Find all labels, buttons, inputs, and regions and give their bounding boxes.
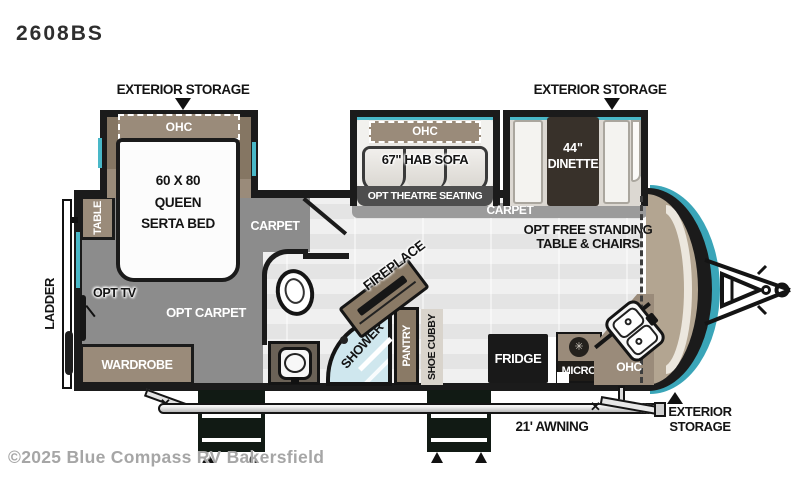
bath-vertical-wall [262, 275, 267, 345]
fridge: FRIDGE [488, 334, 548, 383]
bed-size-label: 60 X 80 [120, 170, 236, 192]
sofa-label: 67" HAB SOFA [362, 152, 488, 167]
bed-type-label: QUEEN [120, 192, 236, 214]
free-standing-line2: TABLE & CHAIRS [508, 237, 668, 251]
sink-drain [634, 336, 644, 346]
pantry-label: PANTRY [401, 325, 413, 367]
tv-unit [80, 295, 86, 341]
bath-sink-basin [284, 353, 306, 373]
free-standing-line1: OPT FREE STANDING [508, 223, 668, 237]
entry-steps-bedroom [198, 390, 265, 452]
bedroom-cabinet-right [239, 117, 251, 179]
ladder-label: LADDER [42, 278, 57, 330]
shoe-cubby-label: SHOE CUBBY [426, 314, 438, 380]
hitch-a-frame [702, 238, 797, 342]
kitchen-ohc-label: OHC [604, 360, 654, 374]
step-tread-line [202, 438, 261, 442]
bath-faucet [291, 377, 299, 384]
ladder-grab-handle [65, 331, 73, 375]
step-foot [431, 452, 443, 463]
dinette-size-label: 44" [547, 141, 599, 157]
ladder-bracket [72, 217, 78, 223]
storage-bottom-line1: EXTERIOR [654, 405, 746, 420]
opt-carpet-label: OPT CARPET [158, 305, 254, 320]
theatre-seating-label: OPT THEATRE SEATING [368, 190, 483, 202]
bedroom-carpet-label: CARPET [243, 219, 307, 233]
step-tread-line [431, 414, 487, 418]
wardrobe-label: WARDROBE [83, 358, 191, 372]
entry-steps-main [427, 390, 491, 452]
model-title: 2608BS [16, 22, 104, 46]
dinette-seatback-right [631, 120, 641, 182]
micro-notch [557, 372, 569, 383]
queen-bed: 60 X 80 QUEEN SERTA BED [116, 138, 240, 282]
pantry: PANTRY [394, 307, 419, 385]
wardrobe: WARDROBE [80, 344, 194, 385]
rear-window-accent [76, 232, 80, 288]
bed-brand-label: SERTA BED [120, 213, 236, 235]
floorplan-canvas: LADDER TABLE WARDROBE OPT TV OHC 60 X 80… [0, 0, 800, 478]
step-tread-line [431, 438, 487, 442]
bath-wall-stub [303, 253, 349, 259]
awning-tube [158, 403, 660, 414]
theatre-seating-band: OPT THEATRE SEATING [357, 186, 493, 206]
shoe-cubby: SHOE CUBBY [421, 309, 443, 385]
bedroom-ohc: OHC [118, 114, 240, 140]
copyright-watermark: ©2025 Blue Compass RV Bakersfield [8, 447, 324, 468]
callout-arrow-bottom [667, 392, 683, 404]
fridge-micro-gap [548, 337, 556, 383]
dinette-label: DINETTE [547, 157, 599, 173]
sofa-ohc: OHC [369, 121, 481, 143]
exterior-storage-callout-left: EXTERIOR STORAGE [103, 82, 263, 97]
fridge-label: FRIDGE [495, 351, 542, 366]
bedroom-window-right [252, 142, 256, 176]
vent-fan-icon: ✳ [569, 337, 589, 357]
table-cabinet: TABLE [80, 196, 115, 240]
dinette-bench-right [603, 120, 630, 204]
dinette-table: 44" DINETTE [547, 117, 599, 206]
step-tread-line [202, 414, 261, 418]
awning-label: 21' AWNING [492, 419, 612, 434]
dinette-bench-left [513, 120, 543, 204]
callout-arrow-left [175, 98, 191, 110]
sofa-slide-window [357, 117, 493, 120]
step-foot [475, 452, 487, 463]
shower-drain [340, 336, 348, 344]
exterior-storage-callout-bottom: EXTERIOR STORAGE [654, 405, 746, 434]
exterior-storage-callout-right: EXTERIOR STORAGE [520, 82, 680, 97]
awning-clamp-right: ✕ [590, 399, 601, 415]
bedroom-window-left [98, 138, 102, 168]
bedroom-ohc-label: OHC [166, 120, 193, 134]
free-standing-label: OPT FREE STANDING TABLE & CHAIRS [508, 223, 668, 252]
callout-arrow-right [604, 98, 620, 110]
opt-tv-label: OPT TV [93, 286, 136, 300]
sink-drain [623, 317, 633, 327]
toilet-bowl [282, 276, 307, 306]
table-label: TABLE [92, 201, 104, 235]
sofa-ohc-label: OHC [412, 126, 438, 138]
storage-bottom-line2: STORAGE [654, 420, 746, 435]
bath-sink [278, 347, 312, 380]
